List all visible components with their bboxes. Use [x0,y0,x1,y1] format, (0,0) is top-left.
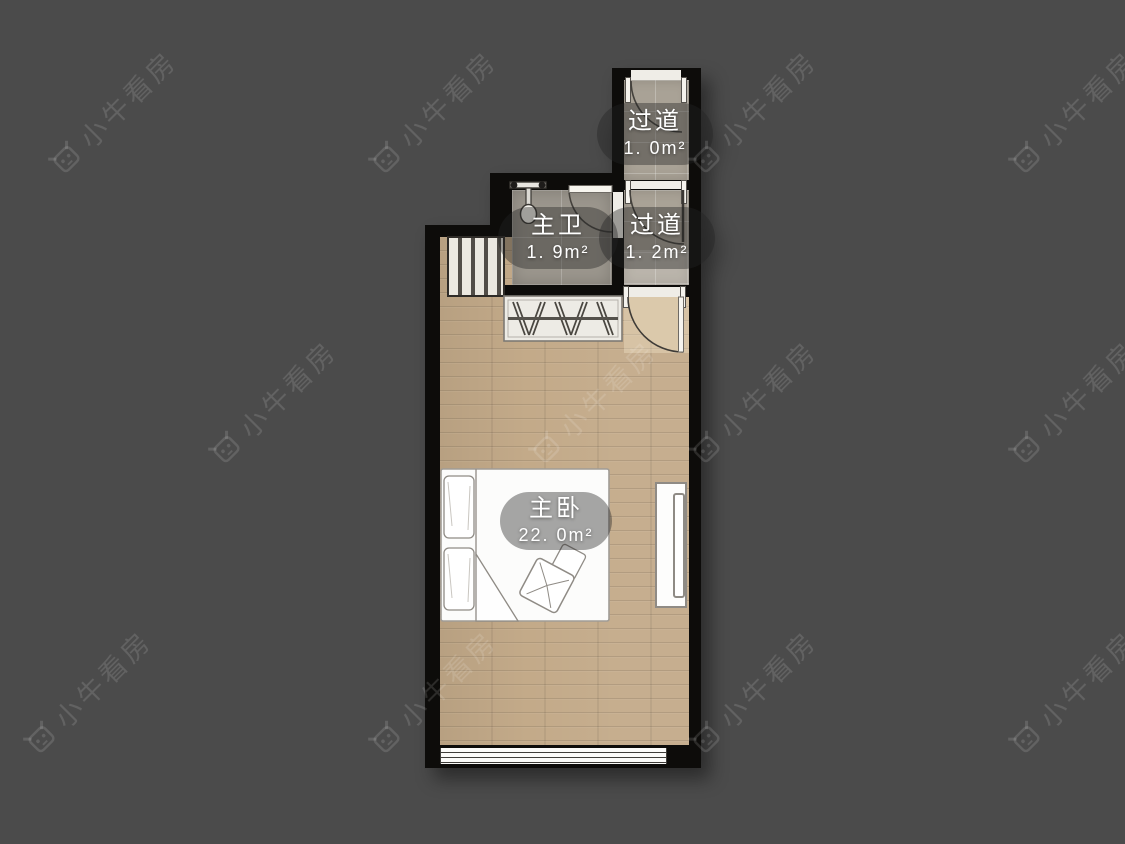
watermark-text: 小牛看房 [709,40,824,155]
watermark-text: 小牛看房 [1029,40,1125,155]
watermark-text: 小牛看房 [709,330,824,445]
wardrobe [503,295,623,342]
niu-logo-icon [44,136,89,181]
room-name: 过道 [630,212,684,240]
room-area: 22. 0m² [518,523,593,547]
floorplan-screenshot: { "watermark": { "text": "小牛看房" }, "floo… [0,0,1125,844]
room-area: 1. 9m² [526,240,589,264]
room-area: 1. 0m² [623,136,686,160]
niu-logo-icon [1004,426,1049,471]
wall-left [425,225,440,768]
entry-door-opening [631,70,681,80]
wall-right [689,68,701,768]
room-label-hallway-top: 过道 1. 0m² [597,103,713,165]
niu-logo-icon [364,136,409,181]
storage-cabinet [447,236,505,297]
niu-logo-icon [19,716,64,761]
bedroom-door-swing-icon [624,295,686,355]
room-area: 1. 2m² [625,240,688,264]
niu-logo-icon [364,716,409,761]
room-name: 过道 [628,108,682,136]
watermark-text: 小牛看房 [44,620,159,735]
hallway-divider-opening [631,181,681,189]
niu-logo-icon [1004,136,1049,181]
room-name: 主卫 [531,212,585,240]
niu-logo-icon [1004,716,1049,761]
watermark-text: 小牛看房 [709,620,824,735]
window [440,748,667,764]
floorplan: 过道 1. 0m² 主卫 1. 9m² 过道 1. 2m² 主卧 22. 0m² [425,68,701,768]
niu-logo-icon [204,426,249,471]
room-label-hallway-mid: 过道 1. 2m² [599,207,715,269]
watermark-text: 小牛看房 [1029,330,1125,445]
watermark-text: 小牛看房 [69,40,184,155]
watermark-text: 小牛看房 [229,330,344,445]
room-label-master-bedroom: 主卧 22. 0m² [500,492,612,550]
tv [673,493,685,598]
watermark-text: 小牛看房 [1029,620,1125,735]
room-name: 主卧 [529,495,583,523]
